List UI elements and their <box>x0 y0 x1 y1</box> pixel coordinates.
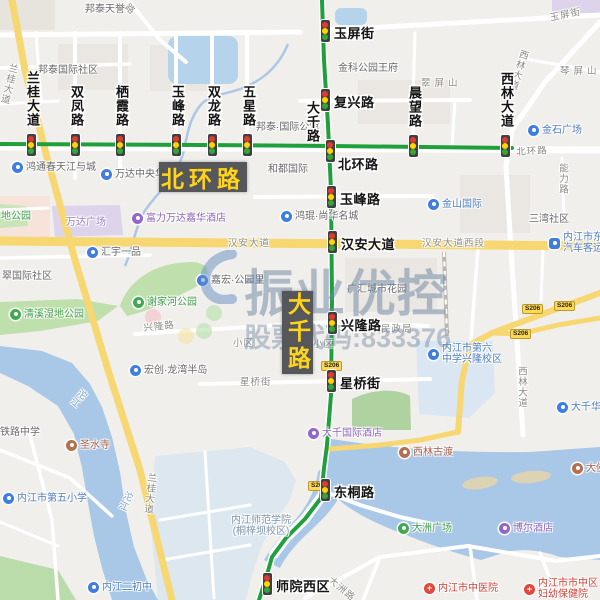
map-canvas[interactable]: 玉屏街北环路汉安大道汉安大道西段兴隆路星桥街民政局小区小区能力路西林大道西林大道… <box>0 0 600 600</box>
basemap-art <box>0 0 600 600</box>
